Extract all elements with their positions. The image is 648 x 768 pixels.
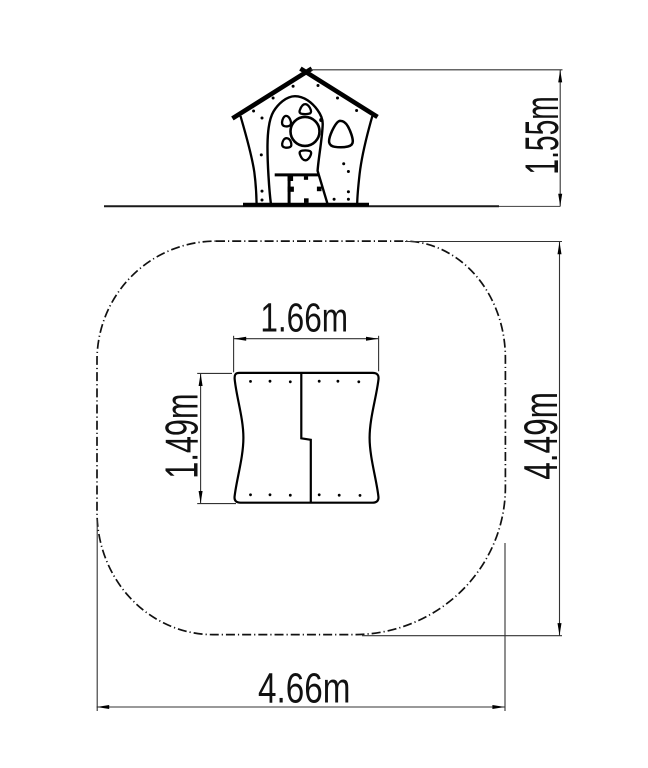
svg-text:4.66m: 4.66m	[258, 664, 350, 712]
svg-text:4.49m: 4.49m	[516, 392, 568, 480]
svg-text:1.66m: 1.66m	[260, 295, 348, 341]
svg-text:1.49m: 1.49m	[157, 393, 208, 478]
svg-text:1.55m: 1.55m	[517, 96, 569, 174]
